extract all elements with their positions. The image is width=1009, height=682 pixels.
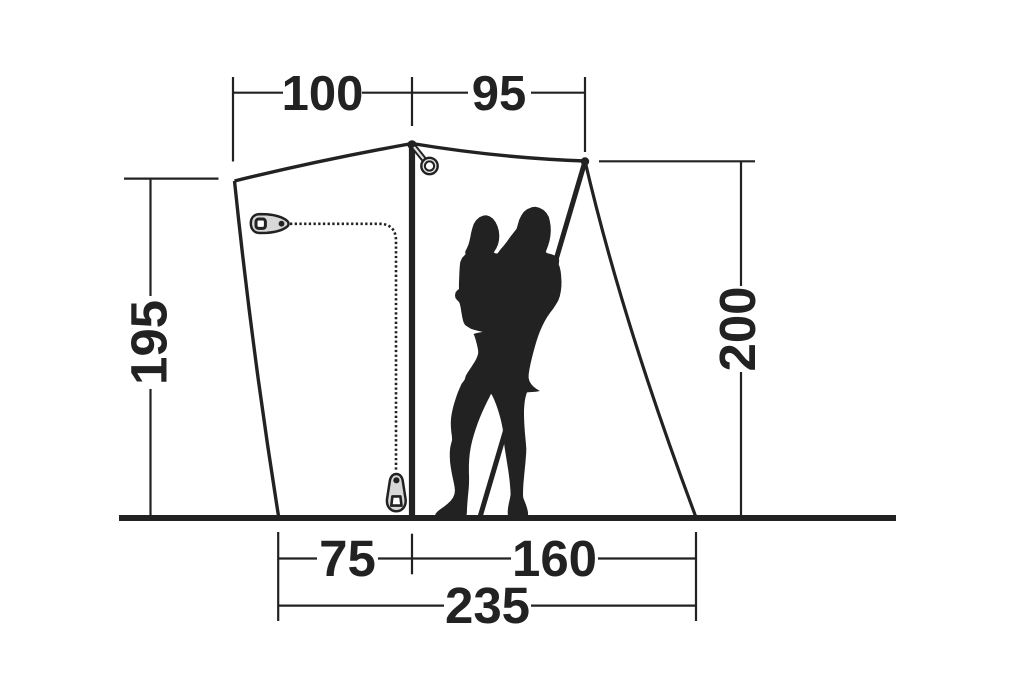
svg-text:195: 195 (121, 300, 178, 385)
svg-text:235: 235 (445, 577, 530, 634)
svg-text:75: 75 (319, 530, 376, 587)
svg-text:200: 200 (709, 286, 766, 371)
svg-text:100: 100 (282, 67, 364, 121)
svg-text:95: 95 (472, 67, 527, 121)
